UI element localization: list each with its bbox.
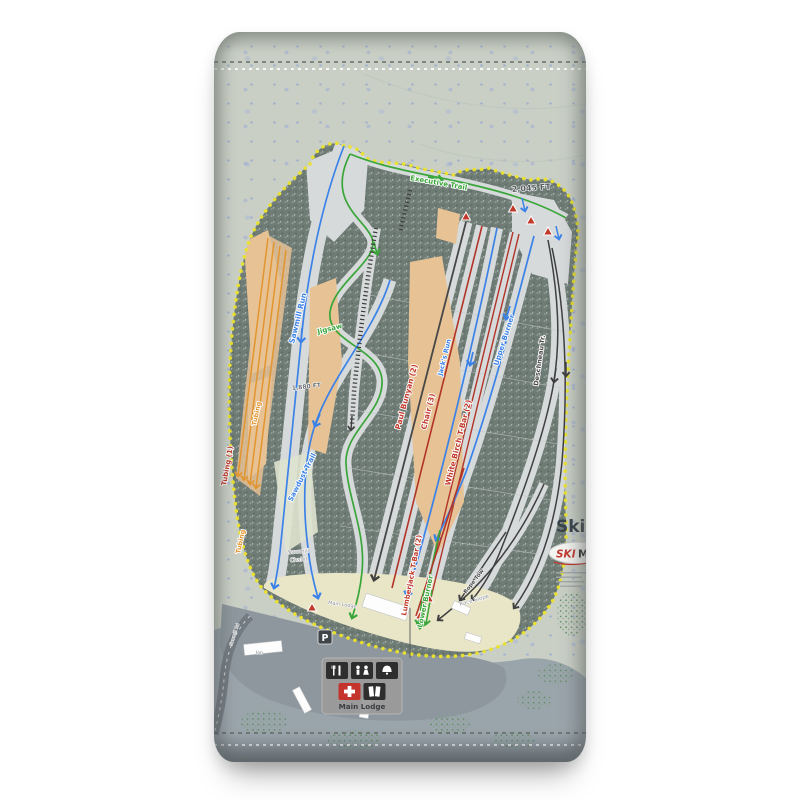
parking-label: P bbox=[322, 633, 329, 644]
contour-lines bbox=[364, 74, 586, 161]
skimap-logo-red-text: SKI bbox=[556, 549, 576, 561]
product-photo-stage: P bbox=[0, 0, 800, 800]
lodge-services-panel: Main Lodge bbox=[322, 658, 402, 714]
parking-sign: P bbox=[318, 630, 332, 644]
trail-map-print: P bbox=[214, 32, 586, 762]
skimap-logo-dark-text: M bbox=[578, 549, 586, 561]
resort-name-text: Ski bbox=[556, 517, 585, 537]
lodge-panel-label: Main Lodge bbox=[339, 702, 386, 711]
inn-label: Inn bbox=[256, 650, 263, 656]
neck-gaiter-product: P bbox=[214, 32, 586, 762]
